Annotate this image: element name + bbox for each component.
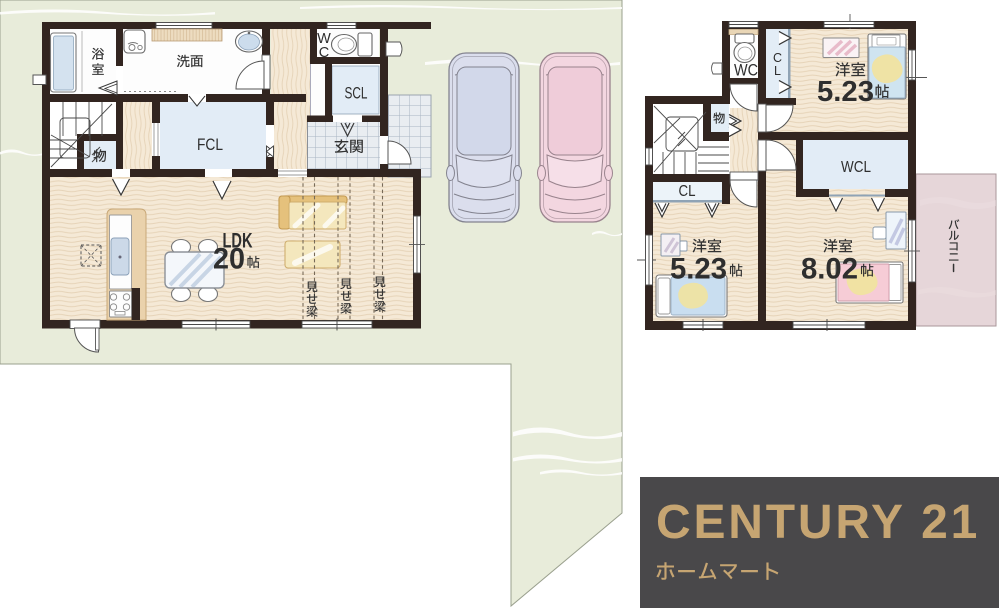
svg-text:WCL: WCL [841,159,871,176]
svg-text:L: L [774,64,781,78]
svg-text:WC: WC [734,61,758,80]
svg-text:20: 20 [213,243,245,276]
svg-text:8.02: 8.02 [801,253,858,286]
svg-text:C: C [773,51,782,65]
svg-text:CL: CL [679,183,696,200]
svg-text:CENTURY 21: CENTURY 21 [656,496,980,549]
svg-text:FCL: FCL [197,136,223,154]
svg-text:C: C [319,45,329,61]
svg-text:SCL: SCL [345,84,368,103]
svg-text:5.23: 5.23 [670,253,727,286]
svg-text:5.23: 5.23 [817,76,874,108]
